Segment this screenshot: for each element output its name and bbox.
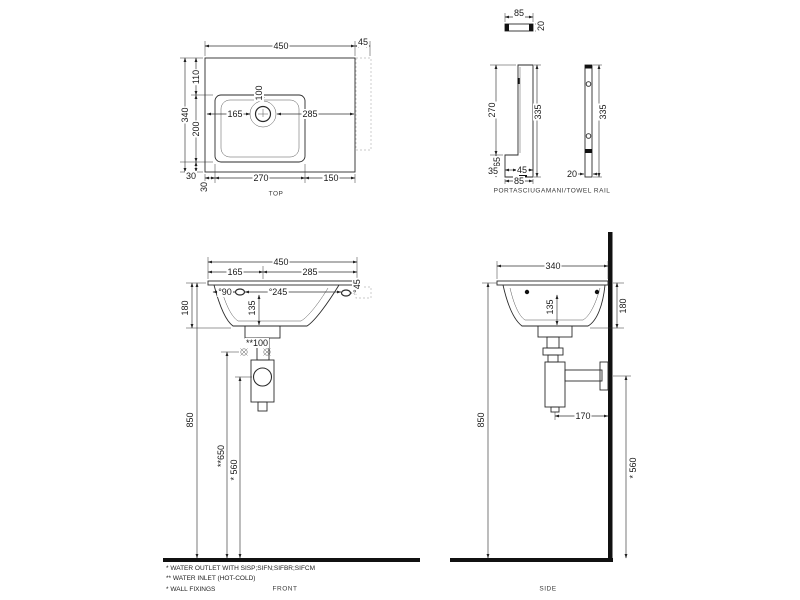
dim-side-bowl-depth: 135 [545, 298, 555, 315]
note-wall-fixings: * WALL FIXINGS [166, 586, 215, 593]
dim-side-body-height: 180 [618, 297, 628, 314]
dim-top-basin-depth: 200 [191, 120, 201, 137]
dim-rail-foot-width: 85 [513, 176, 525, 186]
dim-front-bowl-depth: 135 [247, 299, 257, 316]
dim-rail-side-height: 335 [598, 103, 608, 120]
dim-side-trap-offset: 170 [574, 411, 591, 421]
dim-top-hole-left: 165 [226, 109, 243, 119]
dim-top-hole-right: 285 [301, 109, 318, 119]
dim-top-right-ledge: 150 [322, 173, 339, 183]
dim-top-overall-depth: 340 [180, 106, 190, 123]
water-inlet-icon [241, 349, 248, 356]
dim-side-depth: 340 [544, 261, 561, 271]
technical-drawing-sheet: 450 45 110 200 340 30 30 270 150 165 285… [0, 0, 800, 600]
dim-top-offset-left: 30 [199, 181, 209, 193]
dim-front-outlet-height: * 560 [229, 458, 239, 481]
dim-front-fixing-right: °45 [352, 278, 362, 294]
dim-top-width: 450 [272, 41, 289, 51]
side-view-label: SIDE [539, 586, 556, 593]
dim-front-hole-left: 165 [226, 267, 243, 277]
front-view-drawing [163, 257, 420, 562]
towel-rail-drawing [490, 13, 602, 184]
dim-top-offset-top: 110 [191, 69, 201, 85]
dim-rail-foot-inset: 35 [487, 166, 499, 176]
water-inlet-icon [264, 349, 271, 356]
dim-rail-front-height: 335 [533, 103, 543, 120]
dim-front-hole-right: 285 [301, 267, 318, 277]
towel-rail-label: PORTASCIUGAMANI/TOWEL RAIL [494, 188, 611, 195]
side-view-drawing [450, 232, 631, 562]
dim-top-offset-bottom: 30 [185, 171, 197, 181]
dim-front-body-height: 180 [180, 299, 190, 316]
note-water-inlet: ** WATER INLET (HOT-COLD) [166, 575, 255, 582]
dim-top-basin-width: 270 [252, 173, 269, 183]
dim-side-rim-height: 850 [476, 411, 486, 428]
dim-rail-side-width: 20 [566, 169, 578, 179]
dim-top-ledge-ext: 45 [357, 37, 369, 47]
top-view-label: TOP [269, 191, 284, 198]
dim-front-width: 450 [272, 257, 289, 267]
drawing-linework [0, 0, 800, 600]
dim-rail-inner-height: 270 [487, 101, 497, 118]
dim-rail-plan-width: 85 [513, 8, 525, 18]
dim-front-fixing-span: °245 [268, 287, 289, 297]
dim-rail-plan-depth: 20 [536, 20, 546, 32]
dim-front-fixing-left: °90 [217, 287, 233, 297]
dim-rail-bar-width: 45 [516, 165, 528, 175]
dim-front-rim-height: 850 [185, 411, 195, 428]
dim-front-inlet-height: **650 [216, 444, 226, 468]
dim-side-outlet-height: * 560 [628, 456, 638, 479]
dim-front-inlet-gap: **100 [245, 338, 269, 348]
top-view-drawing [180, 41, 371, 183]
front-view-label: FRONT [273, 586, 298, 593]
dim-top-hole: 100 [254, 84, 264, 101]
note-water-outlet: * WATER OUTLET WITH SISP;SIFN;SIFBR;SIFC… [166, 565, 315, 572]
